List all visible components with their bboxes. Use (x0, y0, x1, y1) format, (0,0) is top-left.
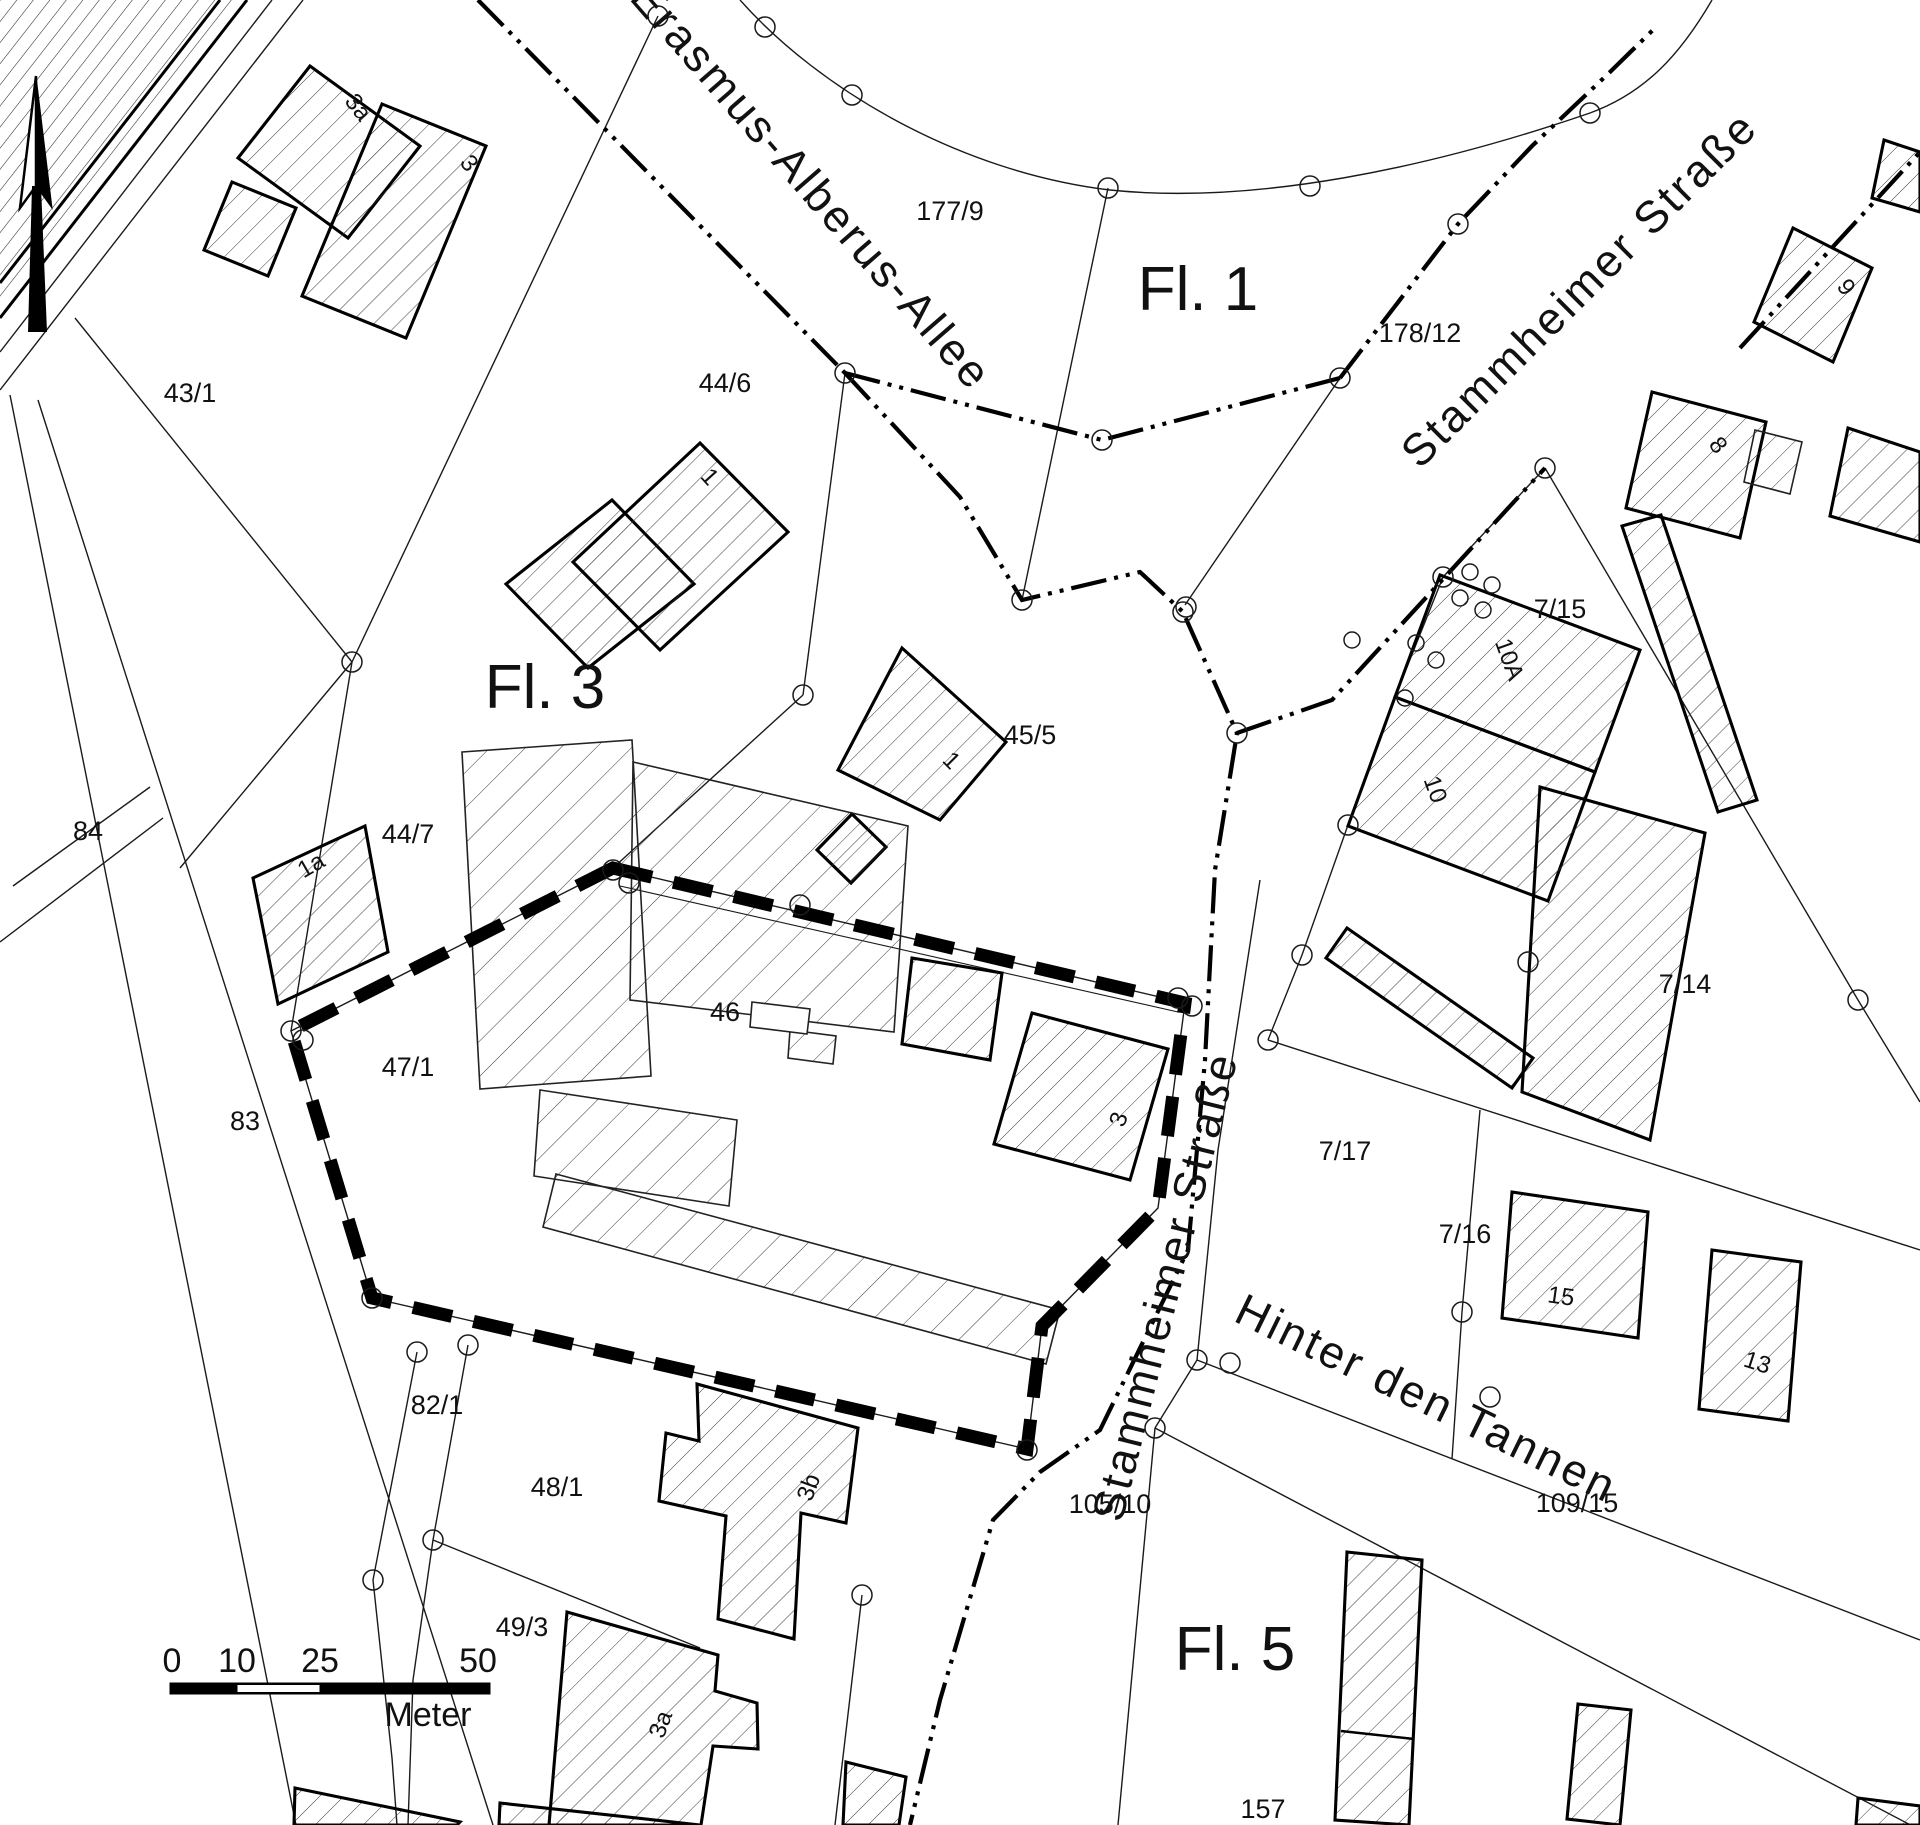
scale-tick-50: 50 (459, 1642, 497, 1680)
parcel-label-48-1: 48/1 (531, 1472, 584, 1502)
cadastral-map: 43/1 3a 3 Erasmus-Alberus-Allee 177/9 Fl… (0, 0, 1920, 1825)
parcel-label-84: 84 (73, 816, 103, 846)
map-canvas: 43/1 3a 3 Erasmus-Alberus-Allee 177/9 Fl… (0, 0, 1920, 1825)
building-bottomright (1856, 1798, 1920, 1825)
building-3-annex (902, 958, 1002, 1060)
building-13 (1699, 1250, 1801, 1421)
parcel-label-43-1: 43/1 (164, 378, 217, 408)
building-bottom-1 (294, 1788, 460, 1825)
parcel-label-44-6: 44/6 (699, 368, 752, 398)
building-1a (253, 826, 388, 1004)
building-long-strip (543, 1174, 1060, 1364)
parcel-label-157: 157 (1240, 1794, 1285, 1824)
parcel-label-7-14: 7/14 (1659, 969, 1712, 999)
parcel-label-49-3: 49/3 (496, 1612, 549, 1642)
parcel-label-83: 83 (230, 1106, 260, 1136)
building-bottom-3 (843, 1762, 906, 1825)
building-3b (659, 1384, 858, 1639)
parcel-label-7-17: 7/17 (1319, 1136, 1372, 1166)
scale-unit-label: Meter (385, 1696, 472, 1734)
building-3a-wing (204, 182, 296, 276)
flur-label-5: Fl. 5 (1175, 1615, 1296, 1684)
building-1-45-5 (838, 648, 1006, 820)
parcel-label-7-16: 7/16 (1439, 1219, 1492, 1249)
building-3-main (994, 1013, 1168, 1180)
building-fl5-tall (1335, 1552, 1422, 1825)
parcel-label-47-1: 47/1 (382, 1052, 435, 1082)
scale-bar: 0 10 25 50 Meter (163, 1642, 497, 1734)
building-main-annex (788, 1030, 836, 1064)
parcel-label-46: 46 (710, 997, 740, 1027)
building-main-west (462, 740, 651, 1089)
building-fl5-right (1567, 1704, 1631, 1825)
building-8 (1626, 392, 1766, 538)
parcel-label-44-7: 44/7 (382, 819, 435, 849)
parcel-label-82-1: 82/1 (411, 1390, 464, 1420)
scale-tick-10: 10 (218, 1642, 256, 1680)
building-right-edge (1830, 428, 1920, 542)
building-8-annex (1744, 430, 1802, 494)
building-15 (1502, 1192, 1648, 1338)
parcel-label-177-9: 177/9 (916, 196, 984, 226)
parcel-label-105-10: 105/10 (1069, 1489, 1152, 1519)
building-main-mid (630, 762, 908, 1032)
flur-label-3: Fl. 3 (485, 653, 606, 722)
building-garage-row-7-17 (1326, 928, 1533, 1088)
scale-tick-25: 25 (301, 1642, 339, 1680)
parcel-label-178-12: 178/12 (1379, 318, 1462, 348)
parcel-label-7-15: 7/15 (1534, 594, 1587, 624)
building-garage-row-7-15 (1622, 515, 1757, 812)
scale-tick-0: 0 (163, 1642, 182, 1680)
building-9 (1754, 228, 1872, 362)
parcel-label-109-15: 109/15 (1536, 1488, 1619, 1518)
flur-label-1: Fl. 1 (1138, 255, 1259, 324)
building-7-14 (1522, 787, 1705, 1140)
house-number-15: 15 (1546, 1281, 1576, 1311)
parcel-label-45-5: 45/5 (1004, 720, 1057, 750)
